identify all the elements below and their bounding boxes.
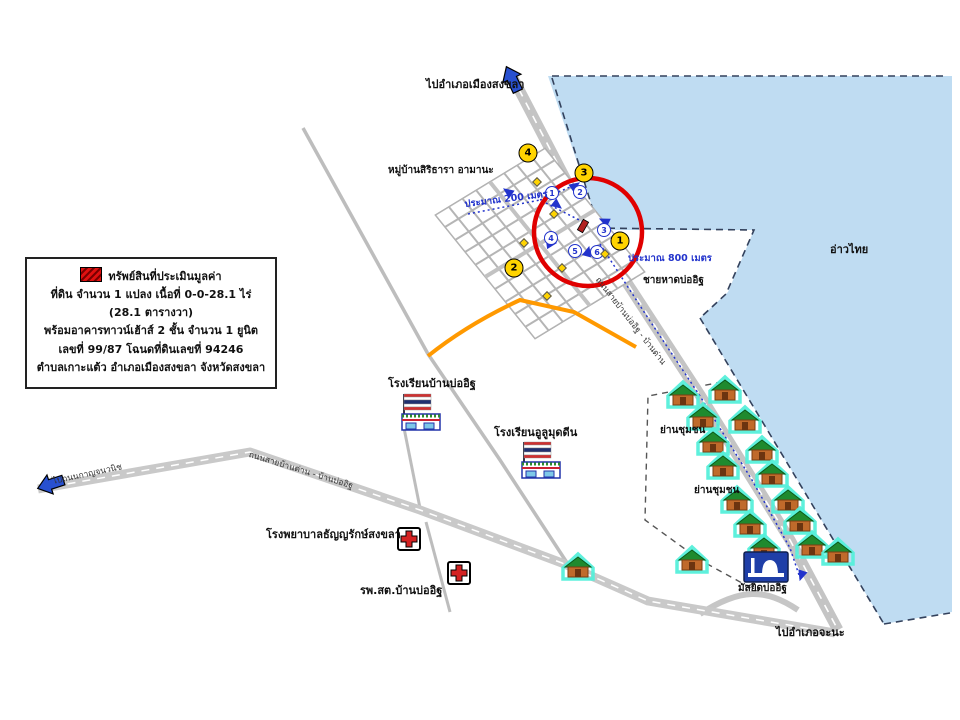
mosque-icon <box>744 552 788 582</box>
label-health-center: รพ.สต.บ้านบ่ออิฐ <box>360 585 442 596</box>
label-community-2: ย่านชุมชน <box>694 486 739 496</box>
label-village: หมู่บ้านสิริธารา อามานะ <box>388 166 494 176</box>
legend-title: ทรัพย์สินที่ประเมินมูลค่า <box>108 270 221 283</box>
legend-land-detail: ที่ดิน จำนวน 1 แปลง เนื้อที่ 0-0-28.1 ไร… <box>33 286 269 322</box>
hospital-icon <box>398 528 420 550</box>
yellow-point-marker-2: 2 <box>505 259 524 278</box>
house-icon <box>710 377 740 402</box>
health-center-icon <box>448 562 470 584</box>
blue-point-marker-2: 2 <box>573 185 587 199</box>
house-icon <box>747 437 777 462</box>
yellow-point-marker-4: 4 <box>519 144 538 163</box>
yellow-point-marker-1: 1 <box>611 232 630 251</box>
label-school1: โรงเรียนบ้านบ่ออิฐ <box>388 378 476 389</box>
map-stage: 1234123456 ไปอำเภอเมืองสงขลา หมู่บ้านสิร… <box>0 0 960 720</box>
legend-location-detail: ตำบลเกาะแต้ว อำเภอเมืองสงขลา จังหวัดสงขล… <box>33 359 269 377</box>
label-community-1: ย่านชุมชน <box>660 426 705 436</box>
legend-box: ทรัพย์สินที่ประเมินมูลค่า ที่ดิน จำนวน 1… <box>25 257 277 389</box>
blue-point-marker-4: 4 <box>544 231 558 245</box>
label-beach: ชายหาดบ่ออิฐ <box>643 276 704 286</box>
label-to-chana: ไปอำเภอจะนะ <box>776 627 845 638</box>
legend-building-detail: พร้อมอาคารทาวน์เฮ้าส์ 2 ชั้น จำนวน 1 ยูน… <box>33 322 269 340</box>
label-school2: โรงเรียนอูลูมุดดีน <box>494 427 577 438</box>
blue-point-marker-5: 5 <box>568 244 582 258</box>
label-to-city: ไปอำเภอเมืองสงขลา <box>426 79 524 90</box>
house-icon <box>757 461 787 486</box>
sea-gulf-of-thailand <box>548 76 952 624</box>
yellow-point-marker-3: 3 <box>575 164 594 183</box>
label-hospital1: โรงพยาบาลธัญญรักษ์สงขลา <box>266 529 401 540</box>
school-ulumuddin-icon <box>522 442 560 478</box>
property-hatch-icon <box>80 267 102 282</box>
school-ban-boit-icon <box>402 394 440 430</box>
house-icon <box>677 547 707 572</box>
house-icon <box>563 554 593 579</box>
label-gulf: อ่าวไทย <box>830 244 868 255</box>
label-mosque: มัสยิดบ่ออิฐ <box>738 584 787 594</box>
blue-point-marker-3: 3 <box>597 223 611 237</box>
house-icon <box>735 511 765 536</box>
legend-deed-detail: เลขที่ 99/87 โฉนดที่ดินเลขที่ 94246 <box>33 341 269 359</box>
label-distance-800m: ประมาณ 800 เมตร <box>628 254 712 264</box>
